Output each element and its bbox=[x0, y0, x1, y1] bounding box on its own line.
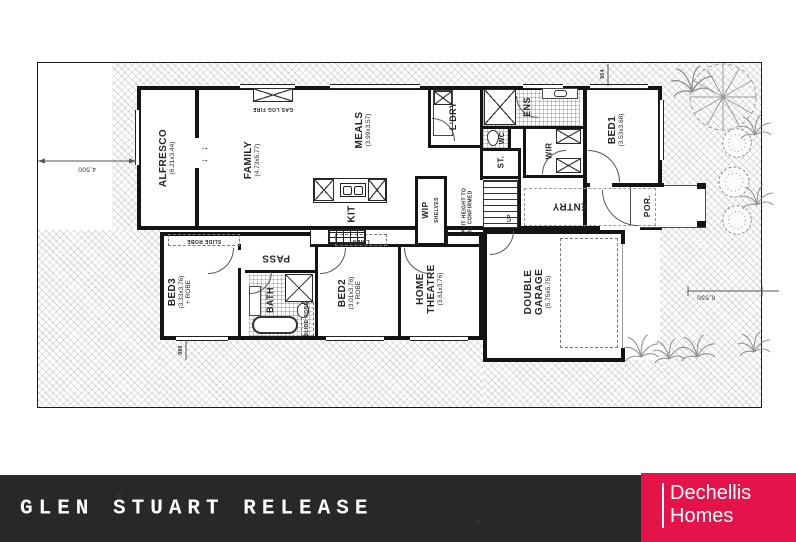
wall-alfresco bbox=[195, 168, 199, 230]
label-wip-shelves: SHELVES bbox=[435, 197, 441, 223]
porch-post bbox=[697, 221, 706, 227]
label-gas-log-fire: GAS LOG FIRE bbox=[253, 105, 294, 111]
ensuite-vanity bbox=[542, 88, 578, 99]
dimension-side-setback: 6,550 bbox=[697, 293, 715, 300]
window bbox=[326, 336, 384, 341]
logo-divider-bar bbox=[662, 483, 664, 528]
wall-laundry bbox=[428, 145, 483, 148]
label-pass: PASS bbox=[262, 252, 290, 263]
window bbox=[135, 110, 140, 165]
wall-bed1-bottom bbox=[583, 183, 590, 187]
label-alfresco: ALFRESCO (6.21x3.44) bbox=[158, 129, 176, 187]
island-appliance bbox=[368, 179, 386, 201]
wall-alfresco bbox=[195, 86, 199, 138]
wir-shelves bbox=[556, 129, 581, 144]
logo-line1: Dechellis bbox=[670, 482, 751, 505]
wall-bed3 bbox=[238, 268, 241, 336]
gas-log-fire-box bbox=[253, 88, 293, 102]
vanity-basin bbox=[554, 90, 567, 97]
ensuite-shower bbox=[484, 89, 516, 125]
window bbox=[330, 84, 420, 89]
wall-store bbox=[480, 148, 521, 151]
logo-text: Dechellis Homes bbox=[670, 482, 751, 528]
island-appliance bbox=[314, 179, 334, 201]
label-wir: WIR bbox=[546, 143, 555, 160]
label-wip: WIP bbox=[421, 201, 431, 218]
label-laundry: L'DRY bbox=[448, 102, 458, 130]
label-porch: POR. bbox=[643, 195, 653, 217]
page: GAS LOG FIRE UP SPLIT HEIGHT TO BE CONFI… bbox=[0, 0, 796, 542]
label-bed2: BED2 (3.01x3.76) + ROBE bbox=[337, 277, 363, 310]
logo-line2: Homes bbox=[670, 505, 751, 528]
door-slide-arrow-icon: → bbox=[200, 143, 209, 152]
window bbox=[410, 336, 468, 341]
window bbox=[590, 84, 648, 89]
label-store: ST. bbox=[498, 156, 507, 169]
release-title: GLEN STUART RELEASE bbox=[20, 497, 373, 520]
wall-laundry bbox=[428, 88, 431, 148]
garage-dashed-outline bbox=[560, 238, 618, 348]
label-up: UP bbox=[508, 214, 514, 222]
label-family: FAMILY (4.73x5.77) bbox=[243, 141, 261, 179]
sink-basin bbox=[354, 186, 363, 195]
label-linen: LINEN bbox=[353, 237, 370, 243]
label-garage: DOUBLE GARAGE (5.75x5.75) bbox=[523, 269, 553, 315]
window bbox=[176, 336, 228, 341]
wall-stairwell bbox=[518, 148, 521, 230]
floor-plan: GAS LOG FIRE UP SPLIT HEIGHT TO BE CONFI… bbox=[0, 0, 796, 475]
door-slide-arrow-icon: → bbox=[200, 155, 209, 164]
wall-bath bbox=[315, 246, 318, 336]
bath-shower bbox=[285, 274, 313, 302]
wall-bed1-bottom bbox=[612, 183, 664, 187]
kitchen-sink bbox=[340, 183, 366, 197]
label-split-height: SPLIT HEIGHT TO BE CONFIRMED bbox=[462, 188, 473, 237]
bathtub bbox=[252, 316, 298, 334]
wall-store bbox=[480, 176, 521, 179]
label-slide-robe-bed2: SLIDE ROBE bbox=[305, 302, 311, 337]
label-bed3: BED3 (3.33x3.76) + ROBE bbox=[167, 276, 193, 309]
sink-basin bbox=[343, 186, 352, 195]
dimension-top-small: 954 bbox=[601, 69, 607, 79]
porch-post bbox=[697, 183, 706, 189]
label-ensuite: ENS bbox=[522, 97, 532, 117]
dechellis-homes-logo: Dechellis Homes bbox=[641, 473, 796, 542]
dimension-front-setback: 4,500 bbox=[78, 165, 96, 172]
label-kitchen: KIT bbox=[346, 205, 357, 222]
label-theatre: HOME THEATRE (3.61x3.76) bbox=[415, 264, 445, 313]
front-door-opening bbox=[600, 226, 640, 230]
label-bath: BATH bbox=[265, 287, 275, 313]
wall-wir bbox=[523, 126, 526, 178]
dimension-bottom-small: 986 bbox=[179, 345, 185, 355]
label-entry: ENTRY bbox=[552, 200, 588, 211]
window bbox=[659, 100, 664, 160]
label-bed1: BED1 (3.53x3.68) bbox=[607, 114, 625, 147]
wall-theatre bbox=[398, 246, 401, 336]
label-meals: MEALS (3.99x3.57) bbox=[354, 112, 372, 149]
garage-door-line bbox=[622, 244, 623, 348]
wall-wir bbox=[523, 175, 585, 178]
label-slide-robe-bed3: SLIDE ROBE bbox=[187, 237, 222, 243]
label-wc: WC bbox=[499, 132, 507, 144]
